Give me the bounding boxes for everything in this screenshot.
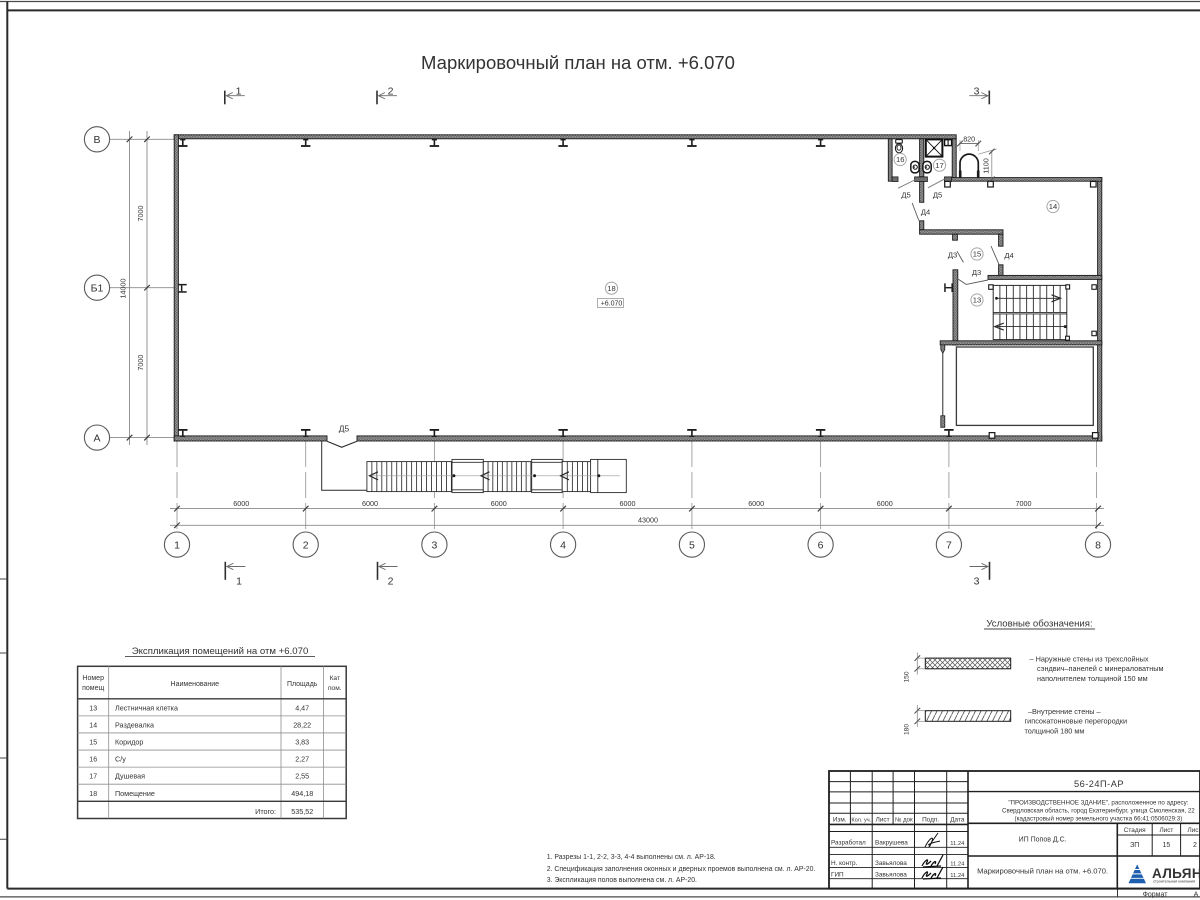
svg-text:2. Спецификация заполнения око: 2. Спецификация заполнения оконных и две…: [547, 866, 816, 873]
svg-text:Маркировочный план на отм. +6.: Маркировочный план на отм. +6.070.: [977, 867, 1108, 876]
svg-text:Формат: Формат: [1143, 891, 1169, 898]
svg-text:Экспликация помещений на отм +: Экспликация помещений на отм +6.070: [132, 646, 309, 657]
svg-text:Лист: Лист: [1159, 827, 1173, 834]
svg-text:494,18: 494,18: [291, 789, 313, 798]
svg-text:Д5: Д5: [933, 191, 942, 200]
svg-text:Условные обозначения:: Условные обозначения:: [986, 619, 1092, 630]
svg-text:Лист: Лист: [876, 817, 890, 824]
svg-text:6: 6: [818, 539, 824, 551]
svg-text:– Наружные стены из трехслойны: – Наружные стены из трехслойных: [1030, 655, 1149, 664]
svg-text:7: 7: [946, 539, 952, 551]
svg-text:ИП Попов Д.С.: ИП Попов Д.С.: [1019, 837, 1067, 844]
svg-text:строительная компания: строительная компания: [1153, 879, 1195, 883]
svg-text:16: 16: [896, 155, 904, 164]
svg-text:С/у: С/у: [115, 755, 126, 764]
svg-text:"ПРОИЗВОДСТВЕННОЕ ЗДАНИЕ", рас: "ПРОИЗВОДСТВЕННОЕ ЗДАНИЕ", расположенное…: [1008, 800, 1188, 807]
svg-text:гипсокатонновые перегородки: гипсокатонновые перегородки: [1025, 717, 1128, 726]
svg-text:В: В: [93, 134, 100, 146]
svg-text:Коридор: Коридор: [115, 738, 143, 747]
svg-text:7000: 7000: [136, 355, 145, 371]
svg-text:5: 5: [689, 539, 695, 551]
svg-text:Площадь: Площадь: [287, 681, 318, 688]
svg-text:Д3: Д3: [948, 251, 957, 260]
svg-text:14: 14: [1049, 202, 1057, 211]
svg-text:28,22: 28,22: [293, 721, 311, 730]
svg-text:820: 820: [963, 135, 975, 144]
svg-text:180: 180: [903, 724, 910, 735]
svg-text:Лис: Лис: [1188, 827, 1200, 834]
svg-text:Лестничная клетка: Лестничная клетка: [115, 703, 178, 712]
svg-text:пом.: пом.: [328, 685, 342, 692]
svg-text:Разработал: Разработал: [831, 839, 866, 847]
svg-text:3. Экспликация полов выполнена: 3. Экспликация полов выполнена см. л. АР…: [547, 877, 697, 884]
svg-text:2: 2: [388, 576, 394, 588]
svg-text:56-24П-АР: 56-24П-АР: [1074, 779, 1124, 789]
svg-text:14000: 14000: [118, 279, 127, 299]
svg-text:2: 2: [303, 539, 309, 551]
svg-text:1: 1: [236, 86, 242, 98]
svg-text:Кол. уч.: Кол. уч.: [851, 818, 871, 824]
svg-text:Вакрушева: Вакрушева: [875, 840, 908, 847]
svg-text:Раздевалка: Раздевалка: [115, 721, 154, 730]
svg-text:Номер: Номер: [82, 675, 104, 682]
svg-text:11.24: 11.24: [950, 841, 965, 847]
svg-text:Дата: Дата: [950, 817, 965, 824]
svg-text:2: 2: [388, 86, 394, 98]
svg-text:6000: 6000: [362, 499, 378, 508]
svg-text:1: 1: [236, 576, 242, 588]
svg-text:Д5: Д5: [901, 191, 910, 200]
svg-text:–Внутренние стены –: –Внутренние стены –: [1028, 707, 1102, 716]
svg-text:Б1: Б1: [91, 283, 104, 295]
svg-text:ЗП: ЗП: [1130, 842, 1139, 849]
svg-text:6000: 6000: [233, 499, 249, 508]
svg-text:Завьялова: Завьялова: [875, 872, 907, 879]
svg-text:2,55: 2,55: [295, 772, 309, 781]
svg-text:7000: 7000: [1016, 499, 1032, 508]
svg-text:Наименование: Наименование: [171, 681, 220, 688]
svg-text:Свердловская область, город Ек: Свердловская область, город Екатеринбург…: [1002, 808, 1195, 815]
svg-text:3: 3: [974, 86, 980, 98]
svg-text:сэндвич–панелей с минераловатн: сэндвич–панелей с минераловатным: [1037, 664, 1164, 673]
svg-text:Д4: Д4: [921, 208, 930, 217]
svg-text:(кадастровый номер земельного: (кадастровый номер земельного участка 66…: [1015, 816, 1183, 823]
svg-text:15: 15: [973, 250, 981, 259]
svg-text:Д5: Д5: [339, 424, 350, 434]
svg-text:535,52: 535,52: [291, 807, 313, 816]
svg-text:1: 1: [174, 539, 180, 551]
svg-text:1. Разрезы 1-1, 2-2, 3-3, 4-4: 1. Разрезы 1-1, 2-2, 3-3, 4-4 выполнены …: [547, 854, 716, 861]
svg-text:помещ: помещ: [82, 685, 104, 692]
svg-text:толщиной 180 мм: толщиной 180 мм: [1025, 726, 1085, 735]
svg-text:17: 17: [89, 774, 97, 781]
svg-text:18: 18: [607, 284, 615, 293]
svg-text:Д3: Д3: [972, 268, 981, 277]
svg-text:6000: 6000: [491, 499, 507, 508]
svg-text:13: 13: [89, 705, 97, 712]
svg-text:15: 15: [1163, 842, 1171, 849]
svg-text:11.24: 11.24: [950, 861, 965, 867]
svg-text:Стадия: Стадия: [1124, 827, 1146, 834]
svg-text:2: 2: [1193, 842, 1197, 849]
svg-text:1100: 1100: [982, 158, 991, 173]
svg-text:4: 4: [560, 539, 566, 551]
svg-text:14: 14: [89, 723, 97, 730]
svg-text:2,27: 2,27: [295, 755, 309, 764]
svg-text:17: 17: [935, 161, 943, 170]
svg-text:43000: 43000: [638, 516, 658, 525]
svg-text:Н. контр.: Н. контр.: [831, 860, 858, 867]
svg-text:3: 3: [431, 539, 437, 551]
svg-text:Подп.: Подп.: [922, 817, 939, 824]
svg-text:Маркировочный план на отм. +6.: Маркировочный план на отм. +6.070: [421, 52, 735, 73]
svg-text:4,47: 4,47: [295, 703, 309, 712]
svg-text:Завьялова: Завьялова: [875, 860, 907, 867]
svg-text:7000: 7000: [136, 206, 145, 222]
svg-text:15: 15: [89, 740, 97, 747]
svg-text:Итого:: Итого:: [255, 807, 276, 816]
svg-text:150: 150: [903, 671, 910, 682]
svg-text:6000: 6000: [748, 499, 764, 508]
svg-text:Помещение: Помещение: [115, 789, 155, 798]
svg-text:Д4: Д4: [1004, 251, 1013, 260]
svg-text:11.24: 11.24: [950, 873, 965, 879]
svg-text:3,83: 3,83: [295, 738, 309, 747]
svg-text:А: А: [1194, 891, 1199, 898]
svg-text:наполнителем толщиной 150 мм: наполнителем толщиной 150 мм: [1037, 674, 1148, 683]
svg-text:ГИП: ГИП: [831, 872, 844, 879]
svg-text:18: 18: [89, 791, 97, 798]
svg-text:6000: 6000: [620, 499, 636, 508]
svg-text:№ док: № док: [895, 817, 913, 824]
svg-text:Кат: Кат: [330, 675, 340, 682]
svg-text:6000: 6000: [877, 499, 893, 508]
svg-text:+6.070: +6.070: [601, 300, 623, 307]
svg-text:8: 8: [1095, 539, 1101, 551]
svg-text:3: 3: [974, 576, 980, 588]
svg-text:16: 16: [89, 757, 97, 764]
svg-text:Душевая: Душевая: [115, 772, 145, 781]
svg-text:А: А: [93, 432, 100, 444]
svg-text:13: 13: [973, 296, 981, 305]
svg-text:Изм.: Изм.: [833, 817, 847, 824]
